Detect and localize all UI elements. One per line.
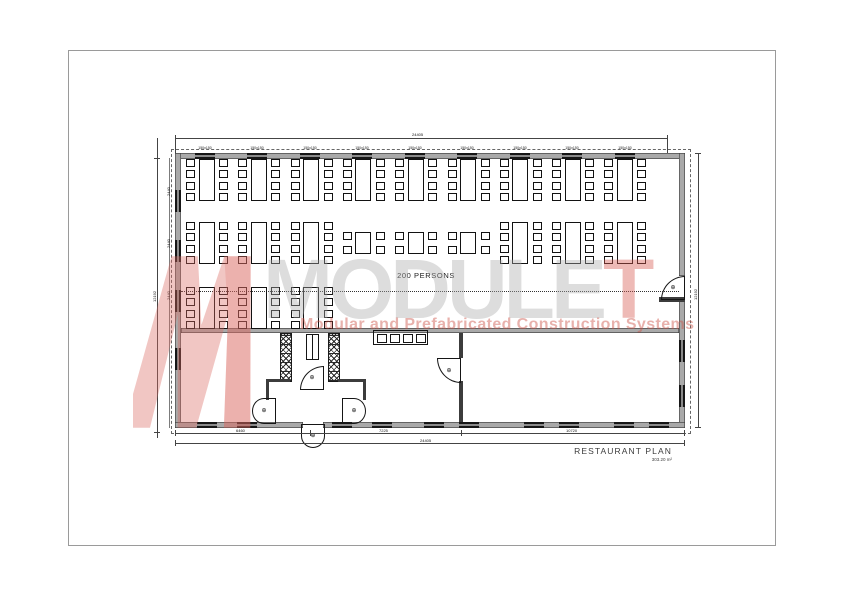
dim-tick: [175, 430, 176, 436]
dim-label: 2440: [166, 239, 171, 248]
window: [679, 385, 685, 407]
window: [352, 153, 372, 159]
plan-area-label: 303.20 m²: [560, 457, 672, 462]
window: [247, 153, 267, 159]
window: [175, 290, 181, 312]
window: [175, 348, 181, 370]
window-size-label: 150x150: [247, 146, 267, 150]
dim-label: 6460: [236, 428, 245, 433]
dim-tick: [695, 427, 701, 428]
window: [679, 340, 685, 362]
dim-label-left: 12192: [152, 291, 157, 302]
dim-tick: [154, 432, 160, 433]
window: [195, 153, 215, 159]
window-size-label: 150x150: [405, 146, 425, 150]
dim-label: 2440: [166, 291, 171, 300]
dim-line-top: [175, 138, 668, 139]
window: [649, 422, 669, 428]
window-size-label: 150x150: [510, 146, 530, 150]
dim-tick: [461, 430, 462, 436]
dim-ext: [175, 139, 176, 153]
dim-line-right: [698, 153, 699, 428]
dim-label: 7225: [379, 428, 388, 433]
window: [424, 422, 444, 428]
window: [175, 240, 181, 262]
dim-label: 10720: [566, 428, 577, 433]
dim-label-right: 12192: [693, 289, 698, 300]
window: [175, 190, 181, 212]
dim-ext: [667, 139, 668, 153]
dim-tick: [175, 440, 176, 446]
dim-label-bottom: 24405: [420, 438, 431, 443]
dim-label-top: 24405: [412, 132, 423, 137]
window-size-label: 150x150: [615, 146, 635, 150]
window: [562, 153, 582, 159]
window: [510, 153, 530, 159]
window: [197, 422, 217, 428]
dim-tick: [684, 440, 685, 446]
dim-tick: [684, 430, 685, 436]
dim-tick: [695, 153, 701, 154]
window-size-label: 150x150: [562, 146, 582, 150]
window-size-label: 150x150: [457, 146, 477, 150]
window: [614, 422, 634, 428]
drawing-canvas: ⊕ ⊕ ⊕ ⊕ ⊕ ⊕ 200 PERSONS 150x150150x15015…: [0, 0, 842, 595]
windows-layer: 150x150150x150150x150150x150150x150150x1…: [0, 0, 842, 595]
window: [615, 153, 635, 159]
dim-line-left: [157, 138, 158, 438]
dim-tick: [154, 158, 160, 159]
window: [300, 153, 320, 159]
dim-line-bottom-inner: [175, 433, 685, 434]
window-size-label: 150x150: [300, 146, 320, 150]
window: [524, 422, 544, 428]
window-size-label: 150x150: [352, 146, 372, 150]
dim-label: 2440: [166, 187, 171, 196]
dim-line-bottom-outer: [175, 443, 685, 444]
window: [457, 153, 477, 159]
window-size-label: 150x150: [195, 146, 215, 150]
window: [332, 422, 352, 428]
window: [459, 422, 479, 428]
window: [405, 153, 425, 159]
dim-tick: [310, 430, 311, 436]
plan-title: RESTAURANT PLAN: [560, 446, 672, 456]
